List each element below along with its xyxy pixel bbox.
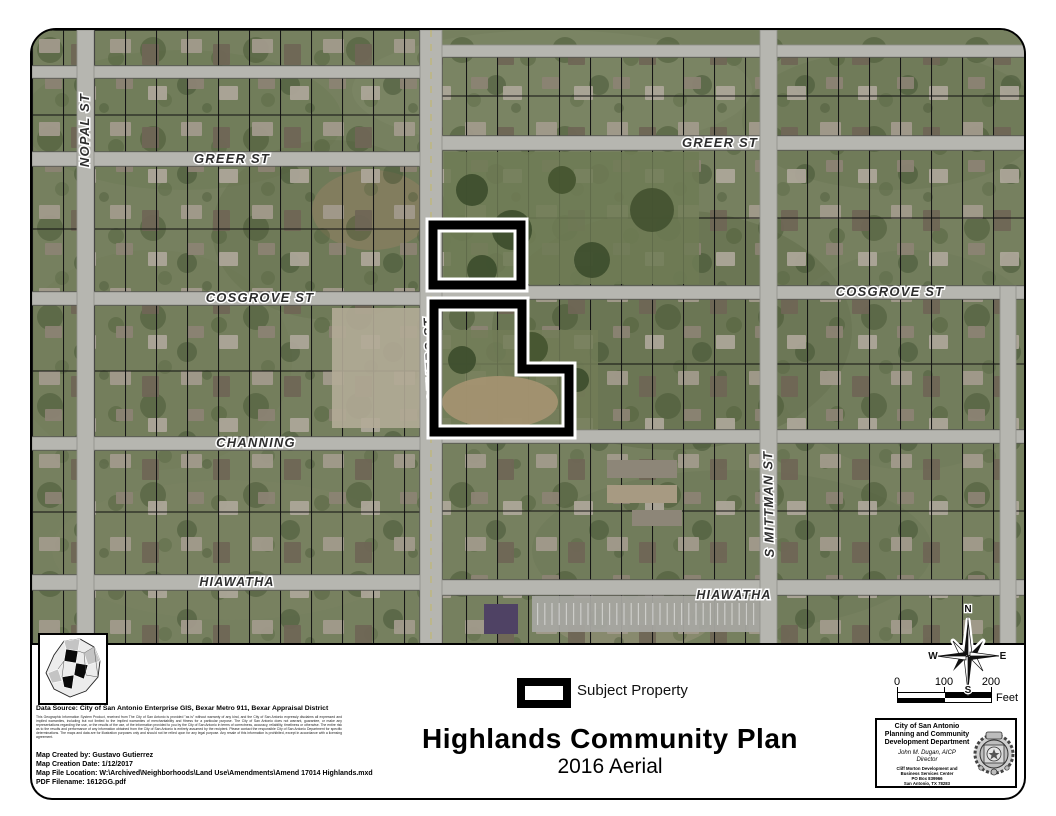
agency-city: City of San Antonio — [879, 723, 975, 731]
compass-s-label: S — [965, 685, 972, 696]
street-label-cosgrove-right: COSGROVE ST — [836, 284, 945, 299]
map-subtitle: 2016 Aerial — [330, 755, 890, 779]
subject-property-swatch — [517, 678, 571, 708]
street-label-cosgrove-left: COSGROVE ST — [206, 290, 315, 305]
street-label-nopal: NOPAL ST — [77, 93, 92, 167]
street-label-mittman: S MITTMAN ST — [760, 451, 777, 558]
map-title: Highlands Community Plan — [330, 723, 890, 755]
agency-box: City of San Antonio Planning and Communi… — [875, 718, 1017, 788]
legend-label: Subject Property — [577, 682, 688, 699]
map-file-location: Map File Location: W:\Archived\Neighborh… — [36, 770, 373, 777]
agency-director-title: Director — [879, 757, 975, 764]
aerial-imagery: GREER ST GREER ST COSGROVE ST COSGROVE S… — [32, 30, 1026, 645]
map-sheet: GREER ST GREER ST COSGROVE ST COSGROVE S… — [0, 0, 1056, 816]
street-label-hiawatha-right: HIAWATHA — [696, 588, 771, 602]
data-source-line: Data Source: City of San Antonio Enterpr… — [36, 705, 756, 712]
agency-dept1: Planning and Community — [879, 731, 975, 739]
agency-text: City of San Antonio Planning and Communi… — [879, 723, 975, 786]
compass-n-label: N — [964, 604, 971, 615]
map-creation-date: Map Creation Date: 1/12/2017 — [36, 761, 133, 768]
agency-address-4: San Antonio, TX 78283 — [879, 781, 975, 786]
map-created-by: Map Created by: Gustavo Gutierrez — [36, 752, 153, 759]
north-arrow: N W E S — [926, 598, 1010, 702]
disclaimer-text: This Geographic Information System Produ… — [36, 716, 342, 739]
county-inset-map — [38, 633, 108, 705]
aerial-map-area: GREER ST GREER ST COSGROVE ST COSGROVE S… — [30, 28, 1026, 645]
street-label-greer-left: GREER ST — [194, 151, 270, 166]
street-label-hiawatha-left: HIAWATHA — [199, 575, 274, 589]
pdf-filename: PDF Filename: 1612GG.pdf — [36, 779, 126, 786]
county-inset-graphic — [40, 635, 106, 703]
agency-director-name: John M. Dugan, AICP — [879, 750, 975, 757]
agency-dept2: Development Department — [879, 739, 975, 747]
compass-e-label: E — [1000, 651, 1007, 662]
street-label-greer-right: GREER ST — [682, 135, 758, 150]
city-seal-icon — [973, 724, 1015, 784]
street-label-channing: CHANNING — [216, 435, 296, 450]
compass-w-label: W — [928, 651, 938, 662]
